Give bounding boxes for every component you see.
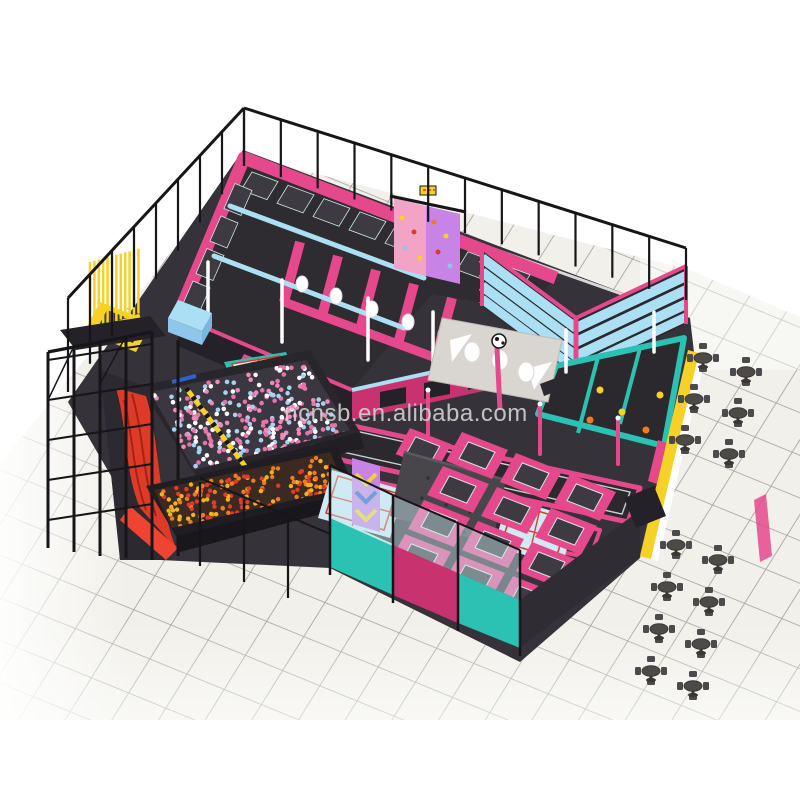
soccer-ball: [492, 334, 506, 348]
foam-pod: [464, 342, 480, 362]
product-render-canvas: ncnsb.en.alibaba.com: [0, 0, 800, 800]
foam-pod: [518, 362, 534, 382]
climbing-wall-pink-panel: [394, 198, 426, 276]
trampoline-park-render: ncnsb.en.alibaba.com: [0, 0, 800, 800]
alibaba-watermark: ncnsb.en.alibaba.com: [284, 400, 527, 427]
climbing-wall-purple-panel: [426, 206, 460, 284]
